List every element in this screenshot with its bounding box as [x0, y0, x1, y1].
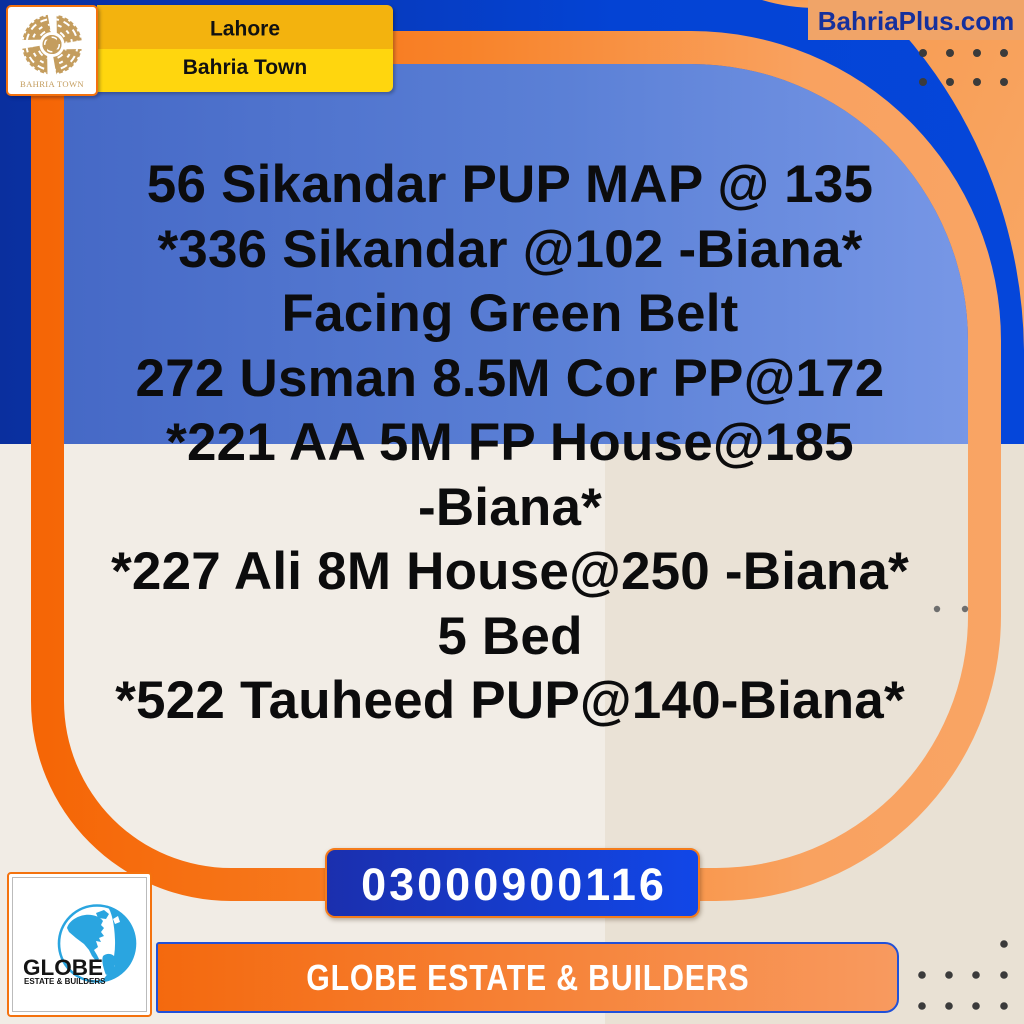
svg-text:ESTATE & BUILDERS: ESTATE & BUILDERS — [24, 977, 106, 986]
svg-text:BAHRIA TOWN: BAHRIA TOWN — [20, 79, 84, 89]
